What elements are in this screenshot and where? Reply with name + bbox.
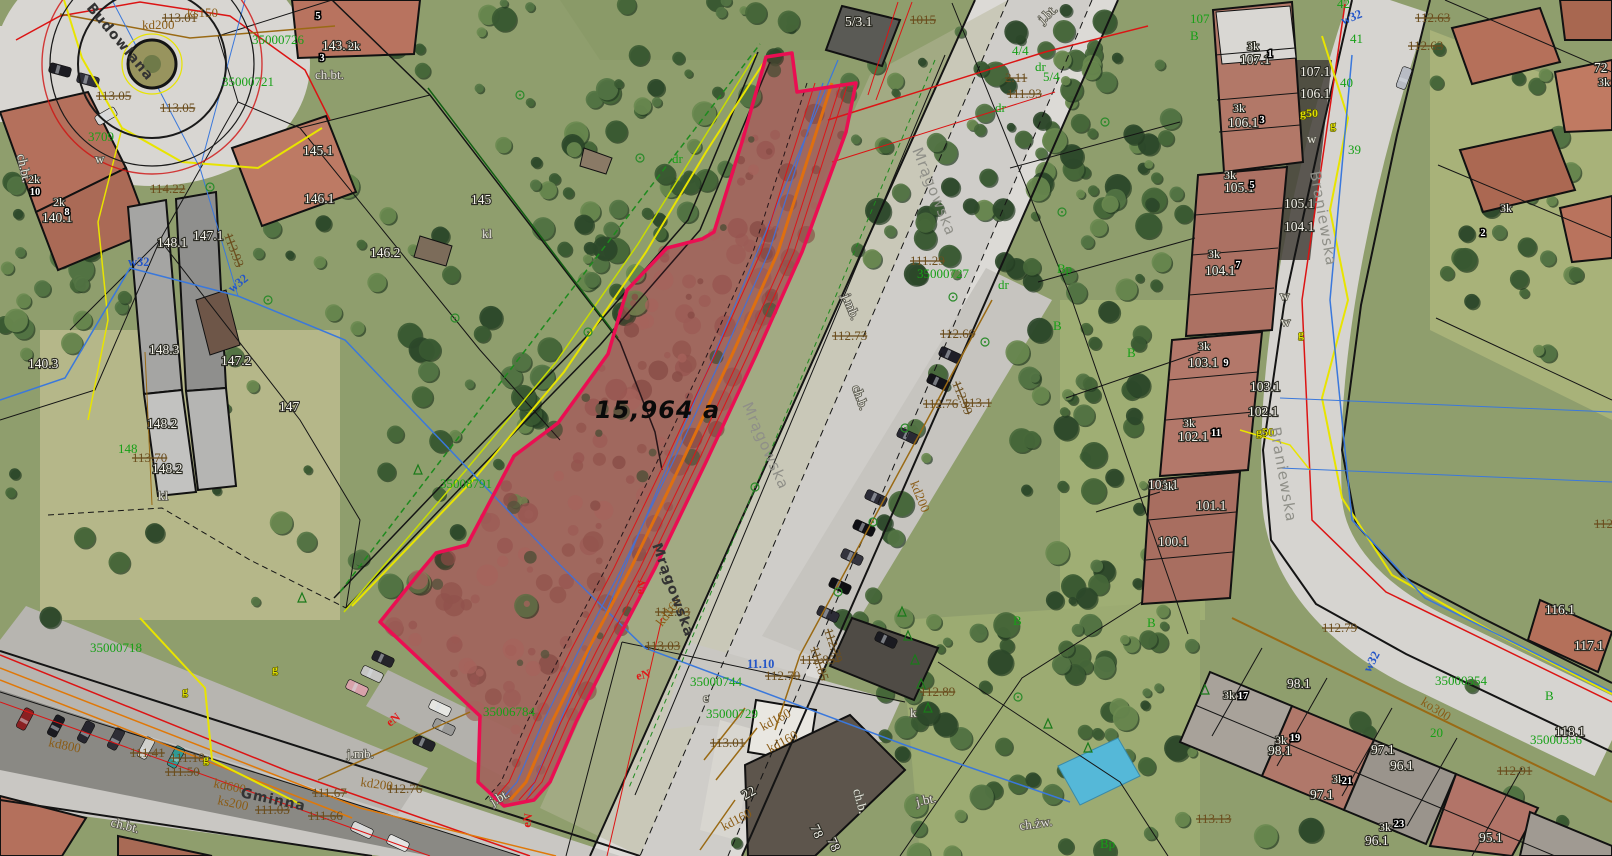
- map-label: 145.1: [303, 143, 333, 158]
- map-label: 97.1: [1371, 742, 1395, 757]
- map-label: 2.11: [1005, 70, 1027, 85]
- map-label: w32: [128, 255, 150, 269]
- map-label: 112.63: [1415, 10, 1450, 25]
- map-label: 3: [1259, 115, 1264, 126]
- map-label: 112.89: [920, 684, 955, 699]
- map-label: B: [1147, 615, 1156, 630]
- map-label: kl: [482, 226, 493, 241]
- map-label: 17: [1238, 691, 1249, 702]
- map-label: 5/3.1: [845, 14, 872, 29]
- map-label: 8: [64, 207, 69, 218]
- map-label: g: [182, 684, 188, 698]
- map-canvas[interactable]: 113.05113.05113.01114.22113.93113.70112.…: [0, 0, 1612, 856]
- map-label: 112.69: [940, 326, 975, 341]
- map-label: 3k: [1224, 168, 1236, 182]
- map-label: kd200: [142, 17, 175, 32]
- map-label: dr: [672, 151, 684, 166]
- map-label: 112.76: [923, 396, 959, 411]
- map-label: 42: [1337, 0, 1350, 11]
- map-label: 4/4: [1012, 43, 1029, 58]
- map-label: 1015: [910, 12, 936, 27]
- map-label: 5: [1249, 180, 1254, 191]
- map-label: 3k: [1379, 820, 1391, 834]
- map-label: 35000729: [706, 706, 758, 721]
- map-label: 105.1: [1284, 196, 1314, 211]
- map-label: 72: [1594, 60, 1608, 75]
- map-label: g: [272, 662, 278, 676]
- map-label: 35008791: [440, 476, 492, 491]
- map-label: e: [703, 690, 709, 705]
- map-label: 3k: [1233, 101, 1245, 115]
- map-label: 5: [315, 11, 320, 22]
- map-label: 20: [1430, 725, 1443, 740]
- map-label: 103.1: [1188, 355, 1218, 370]
- map-label: 11: [1211, 428, 1221, 439]
- map-label: 148.1: [157, 235, 187, 250]
- map-label: 111.18: [170, 750, 205, 765]
- map-label: 114.22: [150, 181, 185, 196]
- map-label: 147: [279, 399, 300, 414]
- map-label: 107.1: [1300, 64, 1330, 79]
- map-label: B: [1127, 345, 1136, 360]
- parcel-area-label: 15,964 a: [595, 396, 720, 424]
- map-label: 41: [1350, 31, 1363, 46]
- map-label: 95.1: [1479, 830, 1503, 845]
- map-label: Bp: [1100, 836, 1115, 851]
- map-label: 112.2: [1594, 516, 1612, 531]
- map-label: dr: [995, 100, 1007, 115]
- map-label: w: [1281, 314, 1291, 329]
- map-label: 148: [118, 441, 138, 456]
- map-label: 21: [1342, 776, 1353, 787]
- map-label: 9: [1223, 358, 1228, 369]
- map-label: 116.1: [1545, 602, 1575, 617]
- map-label: 106.1: [1300, 86, 1330, 101]
- map-label: 1: [1267, 49, 1272, 60]
- map-label: 104.1: [1205, 263, 1235, 278]
- map-label: 112.91: [1497, 763, 1532, 778]
- map-label: 102.1: [1178, 429, 1208, 444]
- map-label: g: [1330, 118, 1336, 132]
- map-label: 19: [1290, 733, 1301, 744]
- map-label: 2k: [53, 195, 65, 209]
- map-label: 107.1: [1240, 52, 1270, 67]
- map-label: 3k: [1162, 479, 1174, 493]
- map-label: k: [910, 705, 917, 720]
- map-label: 106.1: [1228, 115, 1258, 130]
- map-label: 140.3: [28, 356, 59, 371]
- map-label: 148.2: [152, 461, 182, 476]
- map-label: w: [1307, 131, 1317, 146]
- map-label: 113.03: [645, 638, 680, 653]
- map-label: 2k: [348, 39, 360, 53]
- map-label: 111.67: [312, 785, 347, 800]
- map-label: j.mb.: [346, 746, 374, 761]
- map-label: dr: [998, 277, 1010, 292]
- map-label: 111.41: [130, 745, 165, 760]
- map-label: 112.79: [1322, 620, 1357, 635]
- map-label: 146.2: [370, 245, 400, 260]
- map-label: g: [1298, 327, 1304, 341]
- map-label: 3k: [1183, 416, 1195, 430]
- map-label: 104.1: [1284, 219, 1314, 234]
- map-label: 113.1: [963, 395, 992, 410]
- map-label: 118.1: [1555, 724, 1585, 739]
- map-label: 145: [471, 192, 492, 207]
- map-label: w: [1280, 288, 1290, 303]
- map-label: 35000354: [1435, 673, 1488, 688]
- map-label: 35000721: [222, 74, 274, 89]
- map-label: dr: [1035, 59, 1047, 74]
- map-label: 112.63: [1408, 38, 1443, 53]
- map-label: 35006784: [483, 704, 536, 719]
- map-label: 35000726: [252, 32, 305, 47]
- map-label: 102.1: [1248, 404, 1278, 419]
- map-label: 3k: [1208, 247, 1220, 261]
- map-label: 113.05: [96, 88, 131, 103]
- map-label: 35000727: [917, 266, 970, 281]
- map-label: 97.1: [1310, 787, 1334, 802]
- map-label: 3709: [88, 129, 114, 144]
- map-label: 3: [319, 53, 324, 64]
- map-label: 98.1: [1287, 676, 1311, 691]
- map-label: 3k: [1223, 688, 1235, 702]
- map-viewport: 113.05113.05113.01114.22113.93113.70112.…: [0, 0, 1612, 856]
- map-label: ch.bt.: [315, 67, 344, 82]
- map-label: 7: [1235, 260, 1240, 271]
- map-label: 11.10: [747, 657, 774, 671]
- map-label: 113.05: [160, 100, 195, 115]
- map-label: 101.1: [1196, 498, 1226, 513]
- map-label: 3k: [1500, 201, 1512, 215]
- map-label: ks150: [187, 5, 218, 20]
- map-label: 147.1: [193, 228, 223, 243]
- map-label: w: [95, 151, 105, 166]
- map-label: 2: [1480, 228, 1485, 239]
- map-label: 148.2: [147, 416, 177, 431]
- map-label: 35000718: [90, 640, 142, 655]
- map-label: 2k: [28, 172, 40, 186]
- map-label: g: [203, 752, 209, 766]
- map-label: eN: [519, 812, 535, 829]
- map-label: Bp: [1057, 261, 1072, 276]
- map-label: 96.1: [1390, 758, 1414, 773]
- map-label: 148.3: [149, 342, 180, 357]
- map-label: B: [1545, 688, 1554, 703]
- map-label: 39: [1348, 142, 1361, 157]
- map-label: 107: [1190, 11, 1210, 26]
- map-label: g50: [1300, 106, 1318, 120]
- map-label: 3k: [1247, 39, 1259, 53]
- map-label: B: [1190, 28, 1199, 43]
- map-label: 3k: [1198, 339, 1210, 353]
- map-label: 146.1: [304, 191, 334, 206]
- map-label: B: [1013, 613, 1022, 628]
- map-label: 113.13: [1196, 811, 1231, 826]
- map-label: 113.01: [710, 735, 745, 750]
- map-label: 3k: [1598, 75, 1610, 89]
- map-label: 111.66: [308, 808, 343, 823]
- map-label: kl: [158, 488, 169, 503]
- map-label: 23: [1394, 819, 1405, 830]
- map-label: 117.1: [1574, 638, 1604, 653]
- map-label: 100.1: [1158, 534, 1188, 549]
- map-label: 111.93: [1007, 86, 1042, 101]
- map-label: 103.1: [1250, 379, 1280, 394]
- map-label: 40: [1340, 75, 1353, 90]
- map-label: B: [1053, 318, 1062, 333]
- map-label: 35000744: [690, 674, 743, 689]
- map-label: 111.50: [165, 764, 200, 779]
- map-label: 10: [30, 187, 41, 198]
- map-label: 3k: [1275, 733, 1287, 747]
- map-label: 112.73: [832, 328, 867, 343]
- map-label: 96.1: [1365, 833, 1389, 848]
- map-label: 147.2: [221, 353, 251, 368]
